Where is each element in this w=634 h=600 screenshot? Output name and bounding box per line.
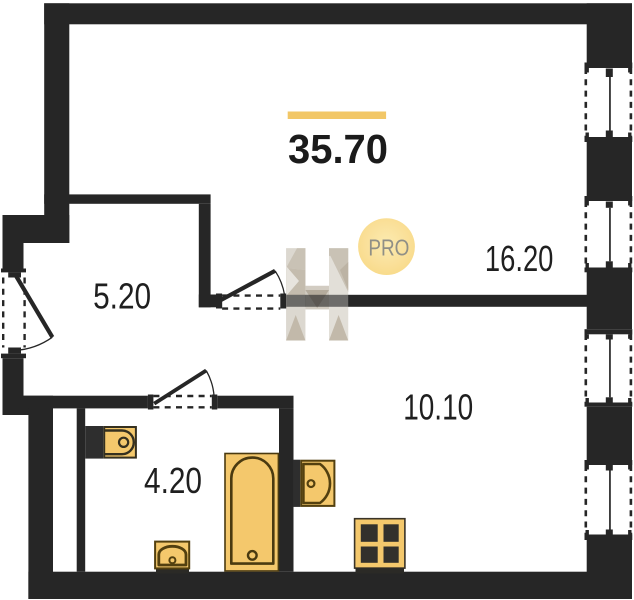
svg-text:PRO: PRO: [368, 235, 409, 261]
svg-text:5.20: 5.20: [93, 276, 151, 317]
svg-text:16.20: 16.20: [485, 238, 554, 279]
svg-text:35.70: 35.70: [288, 126, 388, 172]
svg-text:4.20: 4.20: [144, 460, 202, 501]
svg-text:10.10: 10.10: [403, 387, 473, 428]
